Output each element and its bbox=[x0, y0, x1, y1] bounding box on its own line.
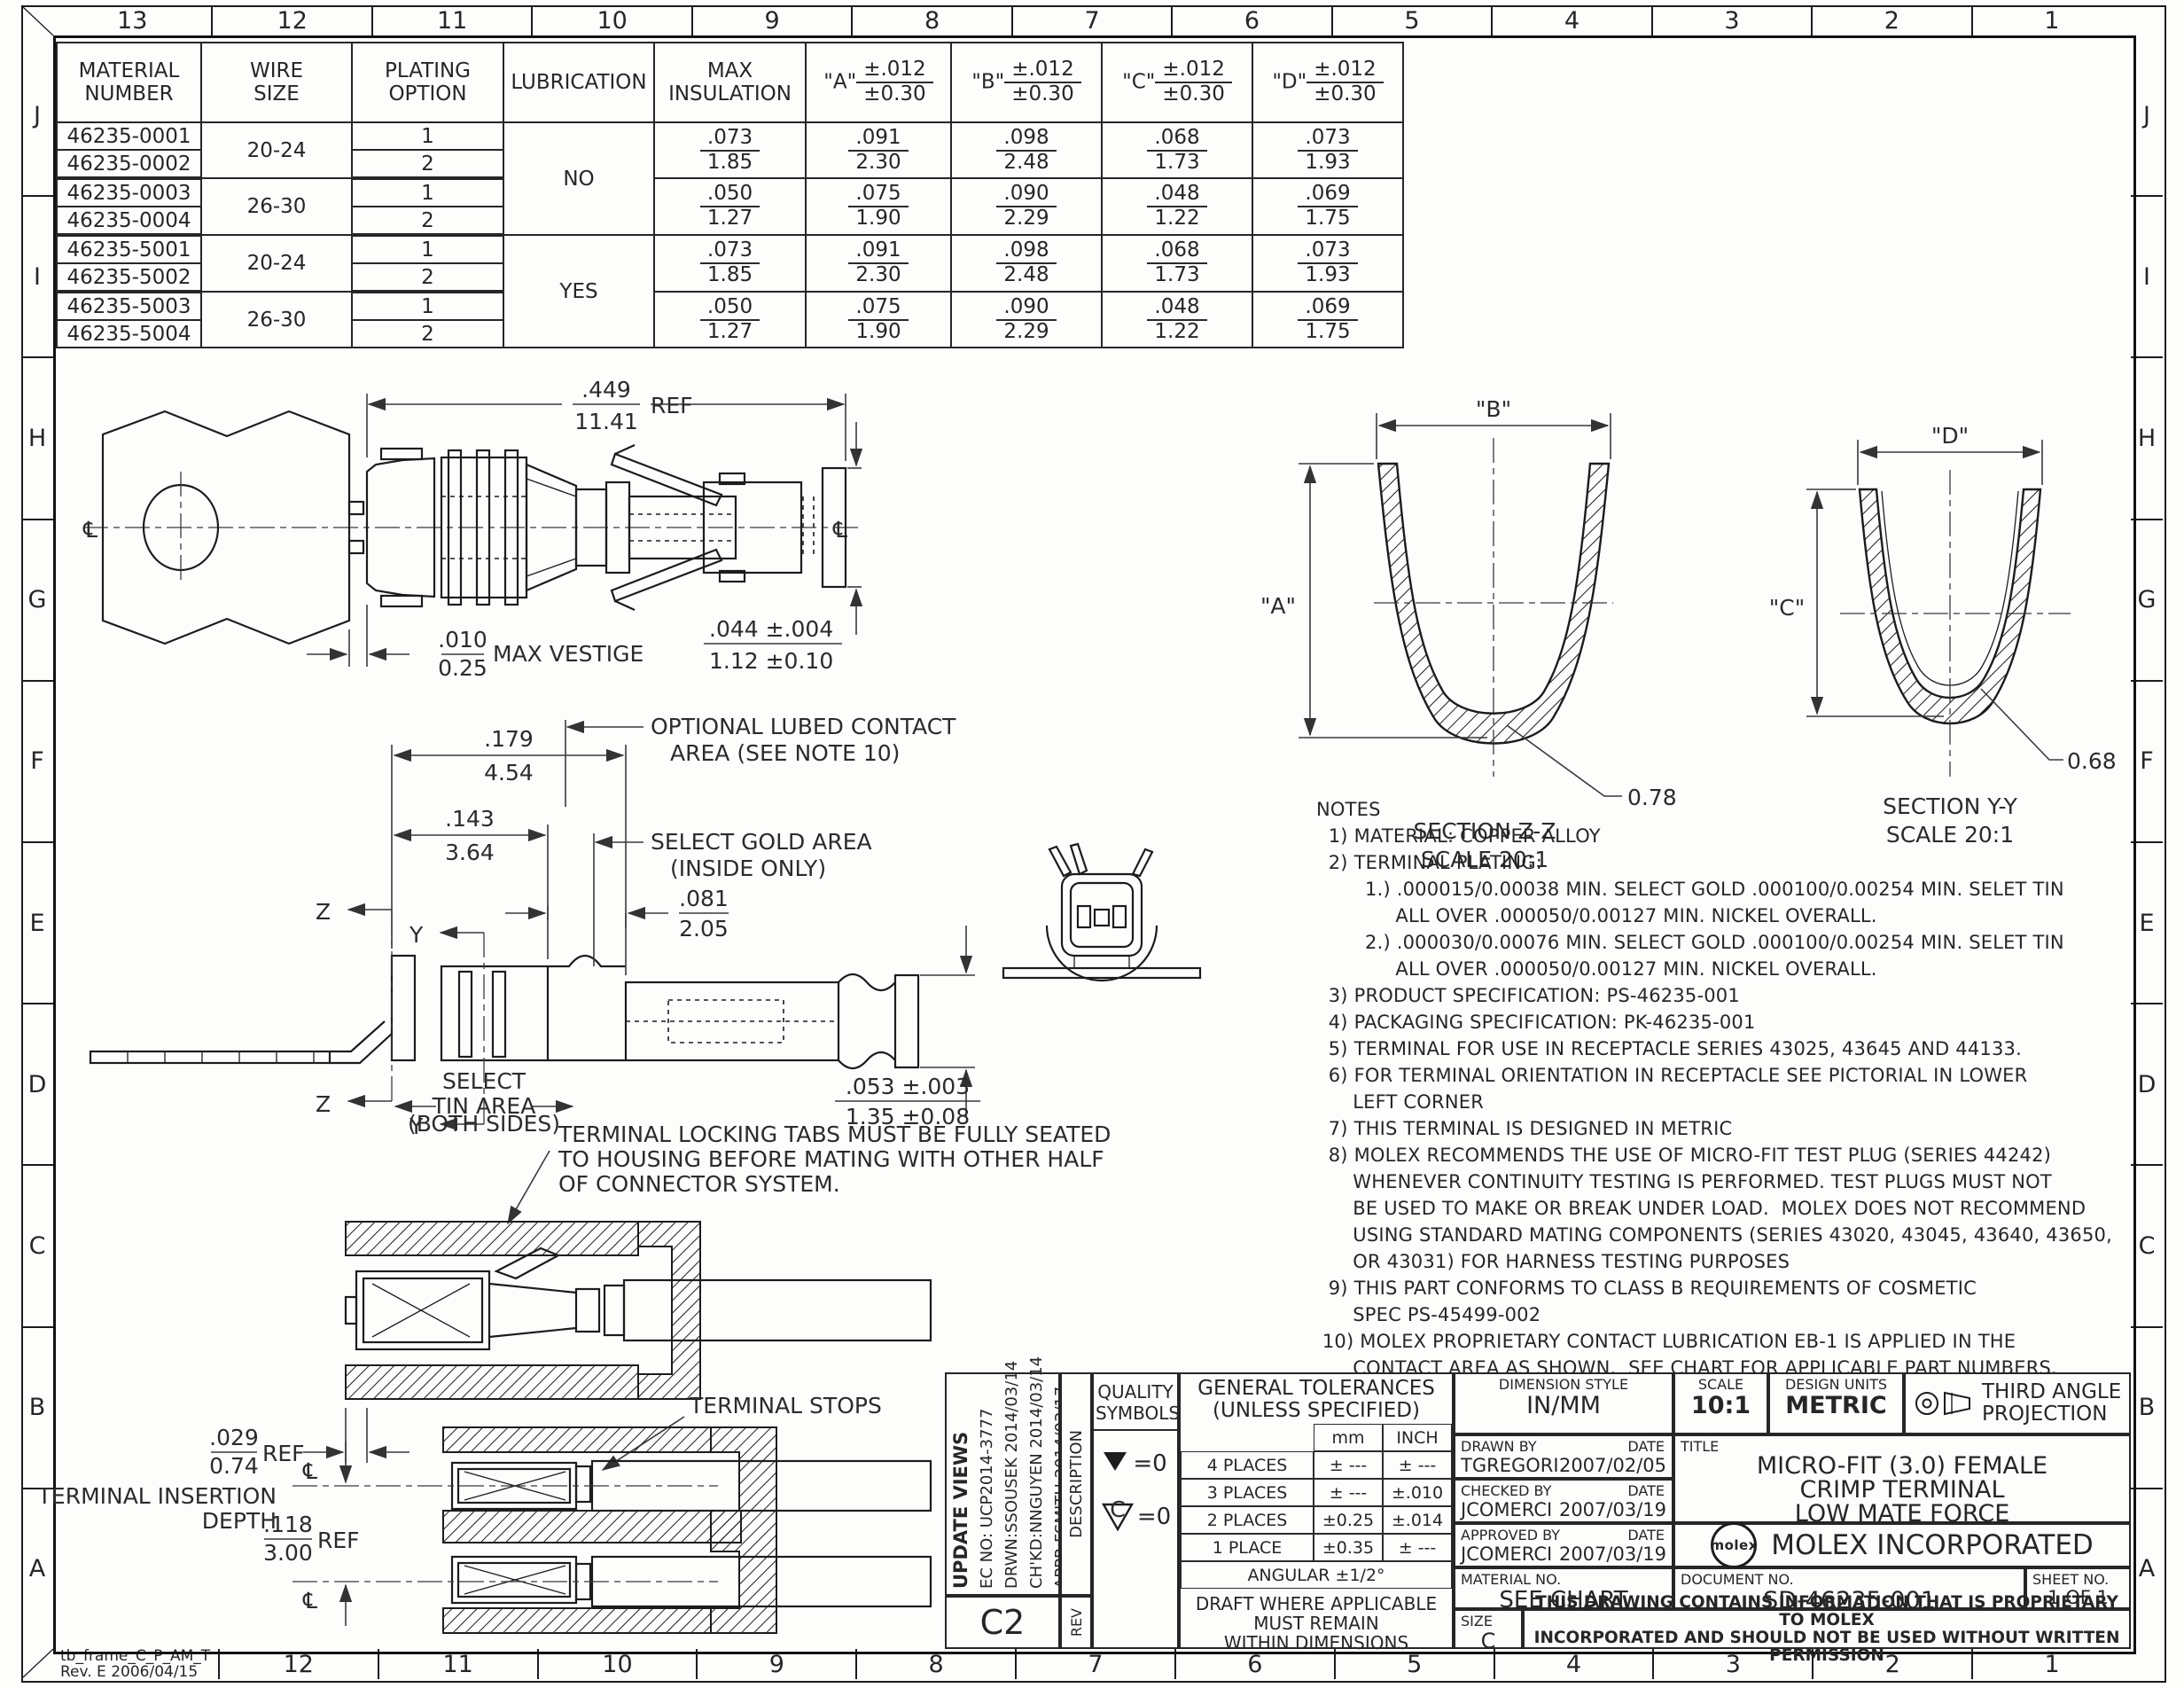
label-gold-2: (INSIDE ONLY) bbox=[670, 856, 826, 881]
centerline-symbol: ℄ bbox=[82, 517, 97, 543]
max-insulation: .0501.27 bbox=[654, 178, 806, 235]
zone-label: B bbox=[21, 1326, 53, 1488]
drawn-by-cell: DRAWN BY DATE TGREGORI 2007/02/05 bbox=[1454, 1434, 1673, 1479]
zone-label: G bbox=[21, 519, 53, 680]
dim-d-name: "D" bbox=[1272, 71, 1306, 94]
dim-tip-mm: 1.12 ±0.10 bbox=[709, 648, 833, 674]
tolerances-title: GENERAL TOLERANCES bbox=[1181, 1374, 1452, 1400]
tol-in: ±.012 bbox=[1004, 59, 1080, 83]
draft-note: DRAFT WHERE APPLICABLE MUST REMAIN WITHI… bbox=[1181, 1589, 1452, 1653]
dim-c: .0681.73 bbox=[1102, 235, 1252, 292]
dim-081-mm: 2.05 bbox=[679, 916, 729, 942]
rev-drawn: DRWN:SSOUSEK 2014/03/14 bbox=[1002, 1379, 1021, 1589]
dim-143-in: .143 bbox=[445, 806, 495, 832]
table-row: 46235-5003 26-30 1 .0501.27 .0751.90 .09… bbox=[57, 292, 1403, 320]
dim-insertion-ref: REF bbox=[262, 1441, 305, 1466]
third-angle-projection-icon bbox=[1911, 1385, 1977, 1422]
tol-angular: ANGULAR ±1/2° bbox=[1181, 1561, 1452, 1589]
drawn-date-value: 2007/02/05 bbox=[1559, 1455, 1666, 1476]
dim-vestige-mm: 0.25 bbox=[438, 655, 487, 681]
col-plating: PLATING OPTION bbox=[352, 43, 503, 122]
material-no-label: MATERIAL NO. bbox=[1455, 1569, 1672, 1587]
tol-value: ± --- bbox=[1314, 1479, 1383, 1506]
label-lube-2: AREA (SEE NOTE 10) bbox=[670, 740, 900, 766]
plating-option: 1 bbox=[352, 235, 503, 263]
revision-history: UPDATE VIEWS EC NO: UCP2014-3777 DRWN:SS… bbox=[945, 1372, 1060, 1596]
dim-d-label: "D" bbox=[1931, 423, 1969, 449]
rev-ec-no: EC NO: UCP2014-3777 bbox=[978, 1379, 996, 1589]
tol-mm: ±0.30 bbox=[1306, 83, 1383, 106]
corner-diagonal-top-left bbox=[21, 5, 53, 35]
zone-label: I bbox=[21, 195, 53, 356]
zone-label: 12 bbox=[211, 5, 370, 35]
zone-label: 10 bbox=[531, 5, 690, 35]
dim-ref-label: REF bbox=[651, 393, 693, 418]
drawn-by-label: DRAWN BY bbox=[1461, 1438, 1537, 1455]
quality-symbols-title: QUALITY SYMBOLS bbox=[1094, 1374, 1177, 1431]
plating-option: 1 bbox=[352, 178, 503, 207]
checked-by-cell: CHECKED BY DATE JCOMERCI 2007/03/19 bbox=[1454, 1479, 1673, 1523]
dim-d: .0731.93 bbox=[1252, 122, 1403, 178]
col-lubrication: LUBRICATION bbox=[503, 43, 654, 122]
company-name: MOLEX INCORPORATED bbox=[1771, 1529, 2094, 1561]
zone-label: 2 bbox=[1811, 5, 1970, 35]
rev-label: REV bbox=[1068, 1608, 1085, 1637]
label-gold-1: SELECT GOLD AREA bbox=[651, 829, 872, 855]
centerline-symbol: ℄ bbox=[302, 1458, 317, 1484]
wire-size: 26-30 bbox=[201, 292, 352, 348]
spring-arm-upper bbox=[612, 454, 721, 505]
tol-value: ±.014 bbox=[1383, 1506, 1452, 1534]
terminal-front-pictorial bbox=[1000, 844, 1204, 995]
spring-arm-lower bbox=[612, 550, 721, 601]
zone-label: 4 bbox=[1491, 5, 1650, 35]
title-label: TITLE bbox=[1675, 1436, 2129, 1454]
tol-value: ± --- bbox=[1383, 1534, 1452, 1561]
material-number: 46235-0003 bbox=[57, 178, 201, 207]
tolerances-subtitle: (UNLESS SPECIFIED) bbox=[1181, 1400, 1452, 1422]
dim-insertion-in: .029 bbox=[209, 1425, 259, 1450]
plating-option: 1 bbox=[352, 122, 503, 150]
approved-by-cell: APPROVED BY DATE JCOMERCI 2007/03/19 bbox=[1454, 1523, 1673, 1567]
plating-option: 2 bbox=[352, 207, 503, 235]
title-cell: TITLE MICRO-FIT (3.0) FEMALE CRIMP TERMI… bbox=[1673, 1434, 2131, 1523]
tol-row-label: 3 PLACES bbox=[1181, 1479, 1314, 1506]
quality-triangle-solid-icon bbox=[1104, 1452, 1127, 1471]
label-lube-1: OPTIONAL LUBED CONTACT bbox=[651, 714, 956, 739]
zone-label: 8 bbox=[851, 5, 1010, 35]
table-row: 46235-0001 20-24 1 NO .0731.85 .0912.30 … bbox=[57, 122, 1403, 150]
dim-a: .0751.90 bbox=[806, 292, 951, 348]
zone-label: 13 bbox=[53, 5, 211, 35]
dim-b: .0902.29 bbox=[951, 292, 1102, 348]
approved-by-value: JCOMERCI bbox=[1461, 1543, 1552, 1565]
lubrication: YES bbox=[503, 235, 654, 348]
rear-tab bbox=[392, 956, 415, 1060]
rev-code: C2 bbox=[945, 1596, 1060, 1649]
zone-label: 5 bbox=[1331, 5, 1491, 35]
col-dim-c: "C"±.012±0.30 bbox=[1102, 43, 1252, 122]
locking-note-line2: TO HOUSING BEFORE MATING WITH OTHER HALF bbox=[558, 1146, 1104, 1172]
dim-a: .0751.90 bbox=[806, 178, 951, 235]
tol-value: ±.010 bbox=[1383, 1479, 1452, 1506]
section-y-label: Y bbox=[409, 922, 424, 948]
dim-179-in: .179 bbox=[484, 726, 534, 752]
max-insulation: .0501.27 bbox=[654, 292, 806, 348]
dim-vestige-in: .010 bbox=[438, 627, 487, 653]
tol-in: ±.012 bbox=[1306, 59, 1383, 83]
col-dim-b: "B"±.012±0.30 bbox=[951, 43, 1102, 122]
dim-b-label: "B" bbox=[1476, 396, 1511, 422]
zone-label: 9 bbox=[691, 5, 851, 35]
dimension-style-value: IN/MM bbox=[1455, 1392, 1672, 1419]
tol-mm: ±0.30 bbox=[1155, 83, 1231, 106]
wire bbox=[624, 1280, 931, 1340]
dim-081-in: .081 bbox=[679, 886, 729, 911]
dim-d: .0691.75 bbox=[1252, 292, 1403, 348]
description-column: DESCRIPTION bbox=[1060, 1372, 1092, 1596]
col-dim-d: "D"±.012±0.30 bbox=[1252, 43, 1403, 122]
drawing-sheet: 13 12 11 10 9 8 7 6 5 4 3 2 1 tb_frame_C… bbox=[0, 0, 2184, 1688]
dim-pitch-ref: REF bbox=[317, 1528, 360, 1553]
crimp-section bbox=[441, 966, 548, 1060]
label-tin-1: SELECT bbox=[442, 1068, 526, 1094]
terminal-side-view: Z Z Y Y .179 4.54 .143 3.64 .081 2.05 .0… bbox=[83, 700, 1085, 1131]
sheet-no-label: SHEET NO. bbox=[2027, 1569, 2129, 1587]
col-wire: WIRE SIZE bbox=[201, 43, 352, 122]
parts-table: MATERIAL NUMBER WIRE SIZE PLATING OPTION… bbox=[56, 42, 1404, 348]
date-label: DATE bbox=[1627, 1482, 1665, 1499]
dim-a: .0912.30 bbox=[806, 122, 951, 178]
tol-in: ±.012 bbox=[856, 59, 932, 83]
locking-note-line3: OF CONNECTOR SYSTEM. bbox=[558, 1171, 840, 1197]
document-no-label: DOCUMENT NO. bbox=[1675, 1569, 2024, 1587]
dim-pitch-in: .118 bbox=[263, 1512, 313, 1537]
rev-change: UPDATE VIEWS bbox=[950, 1379, 971, 1589]
zone-strip-top: 13 12 11 10 9 8 7 6 5 4 3 2 1 bbox=[53, 5, 2131, 35]
tol-value: ± --- bbox=[1383, 1451, 1452, 1479]
plating-option: 2 bbox=[352, 320, 503, 348]
material-number: 46235-0002 bbox=[57, 150, 201, 178]
dim-b-name: "B" bbox=[971, 71, 1004, 94]
zone-label: 11 bbox=[371, 5, 531, 35]
zone-label: 1 bbox=[1971, 5, 2131, 35]
wire-size: 20-24 bbox=[201, 235, 352, 292]
dim-tip-in: .044 ±.004 bbox=[709, 616, 833, 642]
tip-flange bbox=[895, 975, 918, 1067]
dim-c-label: "C" bbox=[1769, 595, 1805, 621]
dim-d: .0691.75 bbox=[1252, 178, 1403, 235]
size-value: C bbox=[1455, 1629, 1521, 1653]
size-label: SIZE bbox=[1455, 1611, 1521, 1629]
design-units-label: DESIGN UNITS bbox=[1770, 1374, 1902, 1392]
tol-col-inch: INCH bbox=[1383, 1424, 1452, 1451]
dim-a-name: "A" bbox=[823, 71, 856, 94]
zone-label: J bbox=[21, 35, 53, 195]
zone-label: D bbox=[21, 1003, 53, 1164]
table-row: 46235-0003 26-30 1 .0501.27 .0751.90 .09… bbox=[57, 178, 1403, 207]
drawn-by-value: TGREGORI bbox=[1461, 1455, 1559, 1476]
corner-diagonal-bottom-left bbox=[21, 1649, 53, 1679]
scale-value: 10:1 bbox=[1675, 1392, 1767, 1419]
svg-text:C: C bbox=[1110, 1497, 1125, 1522]
dim-radius: 0.68 bbox=[2067, 748, 2117, 774]
date-label: DATE bbox=[1627, 1527, 1665, 1543]
section-z-label: Z bbox=[316, 899, 331, 925]
tol-row-label: 4 PLACES bbox=[1181, 1451, 1314, 1479]
label-terminal-stops: TERMINAL STOPS bbox=[689, 1393, 882, 1418]
dim-a: .0912.30 bbox=[806, 235, 951, 292]
carrier-strip bbox=[90, 1051, 330, 1063]
design-units-value: METRIC bbox=[1770, 1392, 1902, 1419]
dim-vestige-label: MAX VESTIGE bbox=[493, 641, 643, 667]
general-tolerances: GENERAL TOLERANCES (UNLESS SPECIFIED) mm… bbox=[1179, 1372, 1454, 1649]
proprietary-statement: THIS DRAWING CONTAINS INFORMATION THAT I… bbox=[1523, 1609, 2131, 1649]
plating-option: 1 bbox=[352, 292, 503, 320]
tol-value: ±0.35 bbox=[1314, 1534, 1383, 1561]
material-number: 46235-5003 bbox=[57, 292, 201, 320]
col-insulation: MAX INSULATION bbox=[654, 43, 806, 122]
projection-cell: THIRD ANGLE PROJECTION bbox=[1904, 1372, 2131, 1434]
tol-mm: ±0.30 bbox=[1004, 83, 1080, 106]
dim-pitch-mm: 3.00 bbox=[263, 1540, 313, 1566]
zone-label: F bbox=[21, 680, 53, 841]
description-label: DESCRIPTION bbox=[1067, 1430, 1086, 1538]
quality-triangle-c-icon: C bbox=[1100, 1502, 1135, 1532]
wire-size: 26-30 bbox=[201, 178, 352, 235]
lubrication: NO bbox=[503, 122, 654, 235]
assembly-section-view: TERMINAL LOCKING TABS MUST BE FULLY SEAT… bbox=[80, 1115, 966, 1647]
rev-label-cell: REV bbox=[1060, 1596, 1092, 1649]
dim-b: .0902.29 bbox=[951, 178, 1102, 235]
dim-insertion-mm: 0.74 bbox=[209, 1453, 259, 1479]
notes-block: NOTES 1) MATERIAL: COPPER ALLOY 2) TERMI… bbox=[1316, 796, 2127, 1381]
dim-ref-in: .449 bbox=[581, 377, 631, 402]
material-number: 46235-0004 bbox=[57, 207, 201, 235]
dim-c: .0681.73 bbox=[1102, 122, 1252, 178]
design-units-cell: DESIGN UNITS METRIC bbox=[1768, 1372, 1904, 1434]
tol-row-label: 2 PLACES bbox=[1181, 1506, 1314, 1534]
label-insertion-depth-1: TERMINAL INSERTION bbox=[37, 1483, 277, 1509]
title-block: UPDATE VIEWS EC NO: UCP2014-3777 DRWN:SS… bbox=[945, 1372, 2131, 1649]
rev-checked: CH'KD:NNGUYEN 2014/03/14 bbox=[1027, 1379, 1046, 1589]
quality-sym2-value: =0 bbox=[1137, 1504, 1171, 1530]
table-row: 46235-5001 20-24 1 YES .0731.85 .0912.30… bbox=[57, 235, 1403, 263]
plating-option: 2 bbox=[352, 150, 503, 178]
plating-option: 2 bbox=[352, 263, 503, 292]
crimped-terminal-view: ℄ ℄ .449 11.41 REF bbox=[83, 372, 863, 678]
checked-by-label: CHECKED BY bbox=[1461, 1482, 1551, 1499]
wire-size: 20-24 bbox=[201, 122, 352, 178]
quality-sym1-value: =0 bbox=[1133, 1450, 1166, 1477]
approved-date-value: 2007/03/19 bbox=[1559, 1543, 1666, 1565]
dimension-style-label: DIMENSION STYLE bbox=[1455, 1374, 1672, 1392]
dim-b: .0982.48 bbox=[951, 122, 1102, 178]
checked-date-value: 2007/03/19 bbox=[1559, 1499, 1666, 1520]
locking-note-line1: TERMINAL LOCKING TABS MUST BE FULLY SEAT… bbox=[558, 1121, 1111, 1147]
projection-label: THIRD ANGLE PROJECTION bbox=[1982, 1381, 2121, 1426]
tol-row-label: 1 PLACE bbox=[1181, 1534, 1314, 1561]
tol-mm: ±0.30 bbox=[856, 83, 932, 106]
col-dim-a: "A"±.012±0.30 bbox=[806, 43, 951, 122]
dim-c: .0481.22 bbox=[1102, 292, 1252, 348]
zone-label: A bbox=[21, 1488, 53, 1649]
zone-label: H bbox=[21, 356, 53, 518]
scale-cell: SCALE 10:1 bbox=[1673, 1372, 1768, 1434]
dim-053-in: .053 ±.003 bbox=[846, 1074, 970, 1099]
material-number: 46235-5004 bbox=[57, 320, 201, 348]
material-number: 46235-5001 bbox=[57, 235, 201, 263]
tol-in: ±.012 bbox=[1155, 59, 1231, 83]
max-insulation: .0731.85 bbox=[654, 235, 806, 292]
size-cell: SIZE C bbox=[1454, 1609, 1523, 1649]
tol-value: ± --- bbox=[1314, 1451, 1383, 1479]
dim-d: .0731.93 bbox=[1252, 235, 1403, 292]
molex-logo: molex bbox=[1711, 1522, 1757, 1568]
zone-strip-left: J I H G F E D C B A bbox=[21, 35, 53, 1649]
zone-label: E bbox=[21, 841, 53, 1003]
col-material: MATERIAL NUMBER bbox=[57, 43, 201, 122]
company-cell: molex MOLEX INCORPORATED bbox=[1673, 1523, 2131, 1567]
material-number: 46235-5002 bbox=[57, 263, 201, 292]
dim-b: .0982.48 bbox=[951, 235, 1102, 292]
tol-col-mm: mm bbox=[1314, 1424, 1383, 1451]
dimension-style-cell: DIMENSION STYLE IN/MM bbox=[1454, 1372, 1673, 1434]
material-number: 46235-0001 bbox=[57, 122, 201, 150]
scale-label: SCALE bbox=[1675, 1374, 1767, 1392]
checked-by-value: JCOMERCI bbox=[1461, 1499, 1552, 1520]
section-z-label: Z bbox=[316, 1091, 331, 1117]
dim-ref-mm: 11.41 bbox=[574, 409, 638, 434]
date-label: DATE bbox=[1627, 1438, 1665, 1455]
dim-c: .0481.22 bbox=[1102, 178, 1252, 235]
approved-by-label: APPROVED BY bbox=[1461, 1527, 1560, 1543]
dim-c-name: "C" bbox=[1122, 71, 1155, 94]
zone-label: 3 bbox=[1651, 5, 1811, 35]
dim-179-mm: 4.54 bbox=[484, 760, 534, 785]
quality-symbols: QUALITY SYMBOLS =0 C =0 bbox=[1092, 1372, 1179, 1649]
zone-label: C bbox=[21, 1164, 53, 1325]
dim-143-mm: 3.64 bbox=[445, 840, 495, 865]
zone-label: 7 bbox=[1011, 5, 1171, 35]
drawing-title: MICRO-FIT (3.0) FEMALE CRIMP TERMINAL LO… bbox=[1675, 1454, 2129, 1526]
tol-value: ±0.25 bbox=[1314, 1506, 1383, 1534]
zone-label: 6 bbox=[1171, 5, 1330, 35]
max-insulation: .0731.85 bbox=[654, 122, 806, 178]
centerline-symbol: ℄ bbox=[302, 1588, 317, 1614]
dim-a-label: "A" bbox=[1260, 593, 1296, 619]
